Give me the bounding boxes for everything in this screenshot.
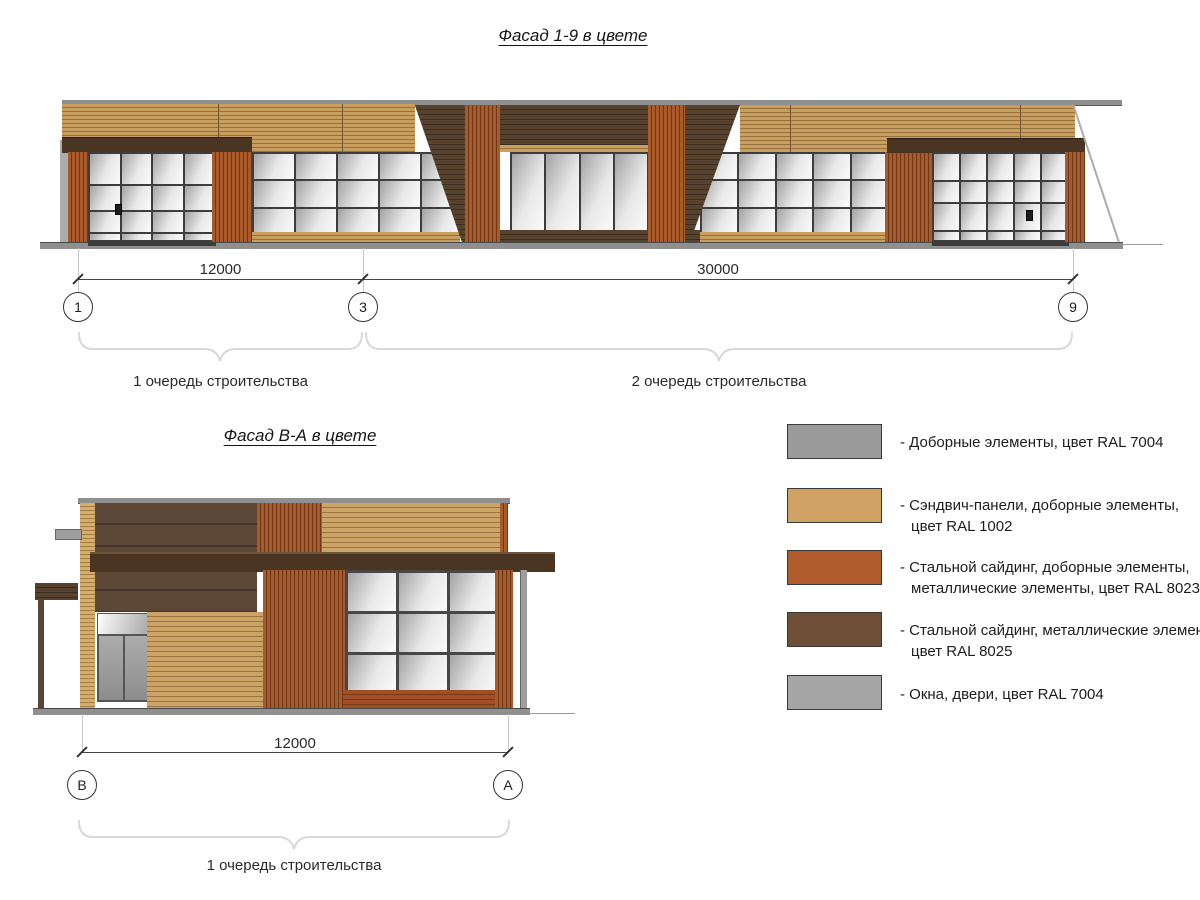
- glass-pane: [185, 186, 215, 210]
- glass-pane: [988, 182, 1013, 202]
- curtain-wall-window-midleft: [252, 152, 464, 236]
- glass-pane: [934, 154, 959, 180]
- glass-pane: [934, 232, 959, 240]
- glass-pane: [348, 573, 396, 611]
- glass-pane: [615, 154, 647, 232]
- axis-marker-a: А: [493, 770, 523, 800]
- door-handle: [115, 204, 122, 215]
- door-leaf: [125, 636, 149, 700]
- dimension-value: 12000: [78, 261, 363, 278]
- canopy-post-right: [520, 570, 527, 708]
- door-handle: [1026, 210, 1033, 221]
- glass-pane: [185, 234, 215, 240]
- legend-label: - Сэндвич-панели, доборные элементы, цве…: [900, 495, 1200, 537]
- phase-label-2: 2 очередь строительства: [365, 373, 1073, 390]
- glass-pane: [777, 154, 812, 179]
- wood-sill-strip: [700, 232, 885, 242]
- vertical-slat-column: [465, 105, 500, 242]
- glass-pane: [153, 212, 183, 232]
- glass-pane: [338, 209, 378, 234]
- phase-brace: [78, 818, 510, 852]
- legend-swatch-ral8023: [787, 550, 882, 585]
- glass-pane: [122, 234, 152, 240]
- phase-label: 1 очередь строительства: [78, 857, 510, 874]
- legend-text-line: - Стальной сайдинг, металлические элемен…: [900, 620, 1200, 641]
- ground-line: [530, 713, 575, 714]
- door-leaf: [99, 636, 123, 700]
- glass-pane: [512, 154, 544, 232]
- glass-pane: [814, 181, 849, 206]
- glass-pane: [348, 655, 396, 693]
- glass-pane: [380, 209, 420, 234]
- glass-pane: [814, 209, 849, 234]
- glass-pane: [934, 204, 959, 230]
- glass-pane: [1015, 182, 1040, 202]
- storefront-window-left: [88, 152, 216, 246]
- door-transom: [97, 613, 149, 635]
- vertical-slat-pier: [68, 152, 88, 242]
- glass-pane: [380, 154, 420, 179]
- vertical-slat-column: [648, 105, 685, 242]
- glass-pane: [739, 209, 774, 234]
- legend-label: - Стальной сайдинг, металлические элемен…: [900, 620, 1200, 662]
- wood-strip-center: [500, 145, 648, 152]
- legend-label: - Окна, двери, цвет RAL 7004: [900, 684, 1200, 705]
- vertical-slat-pier: [212, 152, 252, 242]
- facade-1-9-title: Фасад 1-9 в цвете: [0, 26, 1146, 46]
- glass-pane: [739, 154, 774, 179]
- window-center: [510, 152, 649, 234]
- glass-pane: [185, 212, 215, 232]
- canopy-fascia-left: [62, 137, 252, 153]
- left-wall-edge: [60, 140, 68, 242]
- glass-pane: [254, 209, 294, 234]
- wood-slat-band-upper: [322, 503, 500, 552]
- glass-pane: [90, 212, 120, 232]
- glass-pane: [581, 154, 613, 232]
- vertical-slat-pier: [1065, 152, 1085, 242]
- glass-pane: [961, 182, 986, 202]
- porch-canopy: [35, 583, 78, 600]
- wood-siding-lower: [147, 612, 263, 708]
- legend-text-line: цвет RAL 8025: [900, 641, 1200, 662]
- steel-siding-band: [343, 690, 497, 708]
- legend-swatch-ral1002: [787, 488, 882, 523]
- entrance-door: [97, 634, 151, 702]
- legend-text-line: металлические элементы, цвет RAL 8023: [900, 578, 1200, 599]
- glass-pane: [450, 573, 498, 611]
- glass-pane: [399, 655, 447, 693]
- glass-pane: [546, 154, 578, 232]
- legend-text-line: - Стальной сайдинг, доборные элементы,: [900, 557, 1200, 578]
- wood-slat-band-right: [932, 105, 1075, 138]
- facade-1-9-drawing: [40, 100, 1190, 248]
- canopy-fascia-right: [887, 138, 1085, 153]
- legend-swatch-ral8025: [787, 612, 882, 647]
- glass-pane: [153, 186, 183, 210]
- extension-line: [508, 714, 509, 752]
- phase-label-1: 1 очередь строительства: [78, 373, 363, 390]
- vertical-slat-edge: [500, 503, 508, 552]
- legend-text-line: - Сэндвич-панели, доборные элементы,: [900, 495, 1200, 516]
- glass-pane: [934, 182, 959, 202]
- glass-pane: [1015, 232, 1040, 240]
- glass-pane: [852, 154, 887, 179]
- glass-pane: [777, 181, 812, 206]
- legend-text-line: - Доборные элементы, цвет RAL 7004: [900, 432, 1200, 453]
- extension-line: [1073, 248, 1074, 293]
- glass-pane: [1042, 182, 1067, 202]
- legend-label: - Доборные элементы, цвет RAL 7004: [900, 432, 1200, 453]
- axis-marker-v: В: [67, 770, 97, 800]
- phase-brace-1: [78, 330, 363, 364]
- canopy-fascia: [90, 552, 555, 572]
- ground-line: [1123, 244, 1163, 245]
- dimension-line: [82, 752, 508, 753]
- legend-swatch-ral7004: [787, 424, 882, 459]
- wood-sill-strip: [252, 232, 460, 242]
- glass-pane: [122, 186, 152, 210]
- axis-marker-3: 3: [348, 292, 378, 322]
- facade-va-drawing: [25, 490, 595, 720]
- vertical-slat-column-lower: [263, 570, 345, 708]
- vertical-slat-edge: [495, 570, 513, 708]
- glass-pane: [90, 154, 120, 184]
- vertical-slat-column-upper: [257, 503, 322, 552]
- glass-pane: [961, 154, 986, 180]
- glass-pane: [348, 614, 396, 652]
- glass-pane: [450, 614, 498, 652]
- glass-pane: [961, 232, 986, 240]
- glass-pane: [296, 154, 336, 179]
- glass-pane: [739, 181, 774, 206]
- dimension-value: 12000: [82, 735, 508, 752]
- glass-pane: [1015, 154, 1040, 180]
- glass-pane: [814, 154, 849, 179]
- panel-joint: [342, 104, 343, 152]
- glass-pane: [153, 154, 183, 184]
- glass-pane: [399, 614, 447, 652]
- vertical-slat-pier: [885, 152, 932, 242]
- base-plinth: [33, 708, 530, 715]
- glass-pane: [185, 154, 215, 184]
- glass-pane: [296, 181, 336, 206]
- glass-pane: [1042, 232, 1067, 240]
- dimension-line: [78, 279, 1073, 280]
- glass-pane: [254, 154, 294, 179]
- wall-bracket: [55, 529, 82, 540]
- glass-pane: [852, 209, 887, 234]
- facade-va-title: Фасад В-А в цвете: [0, 426, 600, 446]
- large-window: [345, 570, 501, 696]
- panel-joint: [1020, 105, 1021, 138]
- legend-text-line: - Окна, двери, цвет RAL 7004: [900, 684, 1200, 705]
- phase-brace-2: [365, 330, 1073, 364]
- glass-pane: [988, 232, 1013, 240]
- wood-slat-corner-strip: [80, 503, 95, 708]
- glass-pane: [702, 209, 737, 234]
- panel-joint: [790, 105, 791, 152]
- glass-pane: [338, 154, 378, 179]
- glass-pane: [777, 209, 812, 234]
- glass-pane: [296, 209, 336, 234]
- glass-pane: [338, 181, 378, 206]
- dimension-value: 30000: [363, 261, 1073, 278]
- glass-pane: [122, 212, 152, 232]
- glass-pane: [988, 204, 1013, 230]
- glass-pane: [961, 204, 986, 230]
- legend-label: - Стальной сайдинг, доборные элементы, м…: [900, 557, 1200, 599]
- axis-marker-1: 1: [63, 292, 93, 322]
- porch-post: [38, 600, 44, 708]
- glass-pane: [988, 154, 1013, 180]
- glass-pane: [852, 181, 887, 206]
- glass-pane: [122, 154, 152, 184]
- legend-swatch-windows: [787, 675, 882, 710]
- storefront-window-right: [932, 152, 1069, 246]
- glass-pane: [153, 234, 183, 240]
- glass-pane: [450, 655, 498, 693]
- axis-marker-9: 9: [1058, 292, 1088, 322]
- curtain-wall-window-midright: [700, 152, 889, 236]
- legend-text-line: цвет RAL 1002: [900, 516, 1200, 537]
- glass-pane: [1042, 154, 1067, 180]
- glass-pane: [90, 234, 120, 240]
- glass-pane: [380, 181, 420, 206]
- glass-pane: [399, 573, 447, 611]
- glass-pane: [254, 181, 294, 206]
- glass-pane: [1042, 204, 1067, 230]
